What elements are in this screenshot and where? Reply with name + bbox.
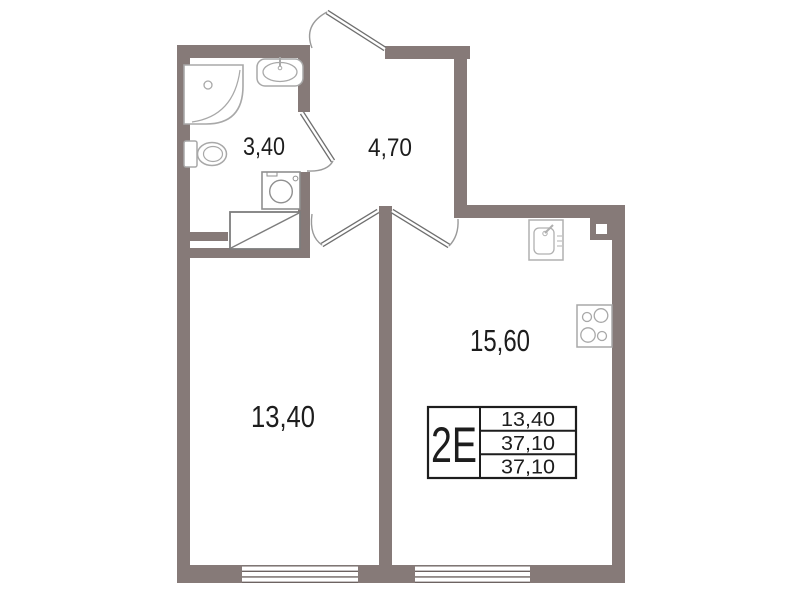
wall-top-bathroom <box>177 45 310 58</box>
bathroom-door <box>302 113 333 171</box>
area-table-row-living: 13,40 <box>501 409 555 431</box>
ventilation-shaft <box>230 212 300 249</box>
washbasin-icon <box>257 57 303 86</box>
kitchen-sink-icon <box>529 220 563 260</box>
wall-hall-right <box>454 46 467 218</box>
room-label-living-room: 13,40 <box>251 399 315 434</box>
stove-icon <box>577 305 612 347</box>
entrance-door-swing-arc <box>310 12 327 48</box>
wall-left <box>177 45 190 583</box>
kitchen-door-swing-arc <box>449 219 458 246</box>
window-kitchen <box>415 565 530 583</box>
walls <box>177 45 625 583</box>
wall-kitchen-top <box>454 205 625 218</box>
kitchen-door <box>392 211 458 246</box>
entrance-door <box>310 12 385 49</box>
room-label-hallway: 4,70 <box>368 134 412 162</box>
corner-bathtub-icon <box>184 65 243 124</box>
wall-right <box>612 205 625 583</box>
wall-partition <box>379 206 392 565</box>
column <box>590 218 613 240</box>
window-living-room <box>242 565 358 583</box>
area-table-row-total: 37,10 <box>501 457 555 479</box>
bathroom-door-swing-arc <box>307 161 333 171</box>
wall-bathroom-bottom <box>190 232 228 241</box>
floor-plan: 3,40 4,70 13,40 15,60 2Е 13,40 37,10 37,… <box>0 0 799 600</box>
room-label-kitchen: 15,60 <box>470 323 530 358</box>
living-room-door-swing-arc <box>311 214 322 245</box>
room-label-bathroom: 3,40 <box>243 133 285 161</box>
toilet-icon <box>184 141 227 167</box>
living-room-door <box>311 211 378 245</box>
area-table-row-area: 37,10 <box>501 433 555 455</box>
apartment-type-label: 2Е <box>431 417 477 473</box>
washing-machine-icon <box>262 172 300 209</box>
